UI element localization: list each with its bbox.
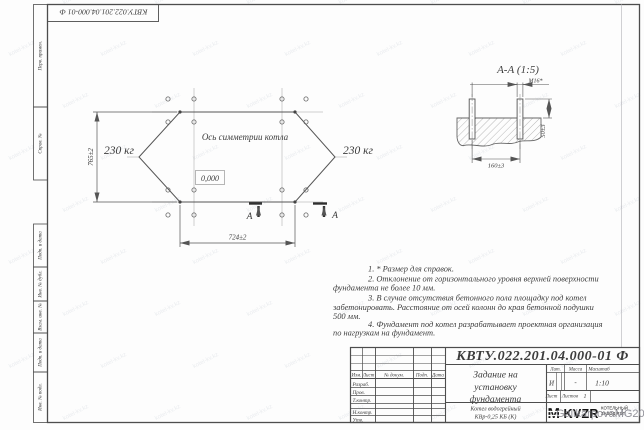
scale-value: 1:10 — [595, 379, 609, 388]
anchor-bolt-hole — [166, 97, 170, 101]
dim-height-label: 765±2 — [87, 148, 95, 166]
load-label-right: 230 кг — [343, 145, 374, 157]
doc-number-top-rotated: КВТУ.022.201.04.000-01 Ф — [59, 8, 149, 17]
note-line: по нагрузкам на фундамент. — [333, 328, 435, 337]
bolt-thread-label: М16* — [528, 79, 543, 85]
change-header-doc: № докум. — [383, 372, 404, 378]
drawing-canvas: Перв. примен. Справ. № Подп. и дата Инв.… — [0, 0, 644, 430]
sig-row-utv: Утв. — [353, 417, 364, 423]
anchor-bolt-hole — [304, 97, 308, 101]
sheet-label: Лист — [545, 395, 558, 400]
drawing-title-line: Задание на — [473, 370, 518, 381]
doc-number: КВТУ.022.201.04.000-01 Ф — [455, 349, 629, 364]
strip-label-sprav-n: Справ. № — [38, 133, 44, 154]
change-header-data: Дата — [431, 373, 444, 378]
note-line: забетонировать. Расстояние от осей колон… — [332, 303, 594, 312]
product-name-line: Котел водогрейный — [469, 406, 520, 413]
change-header-izm: Изм. — [351, 373, 362, 378]
section-title: А-А (1:5) — [496, 64, 539, 76]
sig-row-prov: Пров. — [352, 390, 365, 396]
strip-label-inv-dubl: Инв. № дубл. — [38, 270, 44, 298]
sig-row-tkontr: Т.контр. — [353, 398, 372, 404]
anchor-bolt-hole — [304, 213, 308, 217]
lit-header: Лит. — [549, 367, 561, 372]
dim-width-label: 724±2 — [229, 234, 247, 242]
notes-block: 1. * Размер для справок. 2. Отклонение о… — [332, 265, 603, 338]
section-view: А-А (1:5) М16* 50±3 — [457, 64, 552, 170]
change-header-list: Лист — [362, 373, 375, 378]
anchor-bolt-hole — [166, 120, 170, 124]
strip-label-perv-primen: Перв. примен. — [39, 41, 44, 72]
sig-row-nkontr: Н.контр. — [352, 410, 373, 416]
note-line: 3. В случае отсутствия бетонного пола пл… — [367, 294, 587, 303]
side-strip-labels: Перв. примен. Справ. № Подп. и дата Инв.… — [38, 8, 149, 412]
drawing-title-line: фундамента — [470, 394, 522, 405]
anchor-bolt-holes — [166, 97, 308, 217]
strip-label-vzam-inv: Взам. инв. № — [38, 303, 44, 331]
product-name-line: КВр-0,25 КБ (К) — [474, 414, 517, 421]
note-line: 1. * Размер для справок. — [368, 265, 454, 274]
plan-view: 765±2 724±2 А А Ось симметрии котла 0,00… — [87, 88, 374, 247]
lit-value: И — [548, 380, 555, 388]
symmetry-axis-label: Ось симметрии котла — [202, 132, 289, 142]
note-line: 2. Отклонение от горизонтального уровня … — [368, 275, 599, 284]
sheets-value: 1 — [584, 394, 587, 400]
dim-bolt-spacing-label: 160±3 — [488, 163, 505, 170]
dimension-protrusion — [525, 99, 552, 118]
scale-header: Масштаб — [587, 367, 610, 372]
dim-protrusion-label: 50±3 — [540, 124, 547, 138]
note-line: 500 мм. — [333, 312, 360, 321]
level-mark: 0,000 — [201, 174, 219, 183]
mass-value: - — [574, 379, 577, 387]
load-label-left: 230 кг — [104, 145, 135, 157]
drawing-sheet: Перв. примен. Справ. № Подп. и дата Инв.… — [0, 0, 644, 430]
watermark-signature: GalikarpovaMG2021 — [556, 408, 644, 420]
mass-header: Масса — [568, 367, 583, 372]
section-cut-marks — [249, 204, 327, 218]
drawing-title-line: установку — [473, 383, 517, 393]
sig-row-razrab: Разраб. — [352, 381, 370, 388]
axis-lines — [127, 88, 347, 226]
sheets-label: Листов — [561, 395, 579, 400]
note-line: фундамента не более 10 мм. — [333, 284, 435, 293]
section-letter-left: А — [246, 212, 253, 222]
strip-label-podp-data-2: Подп. и дата — [39, 338, 44, 368]
change-header-podp: Подп. — [415, 373, 428, 378]
dimension-bolt-thread — [470, 83, 549, 98]
strip-label-podp-data-1: Подп. и дата — [39, 231, 44, 261]
title-block: КВТУ.022.201.04.000-01 Ф Задание на уста… — [351, 348, 644, 424]
section-letter-right: А — [331, 211, 338, 221]
foundation-outline — [139, 112, 335, 202]
strip-label-inv-podl: Инв. № подл. — [38, 383, 44, 412]
anchor-bolt-hole — [166, 213, 170, 217]
